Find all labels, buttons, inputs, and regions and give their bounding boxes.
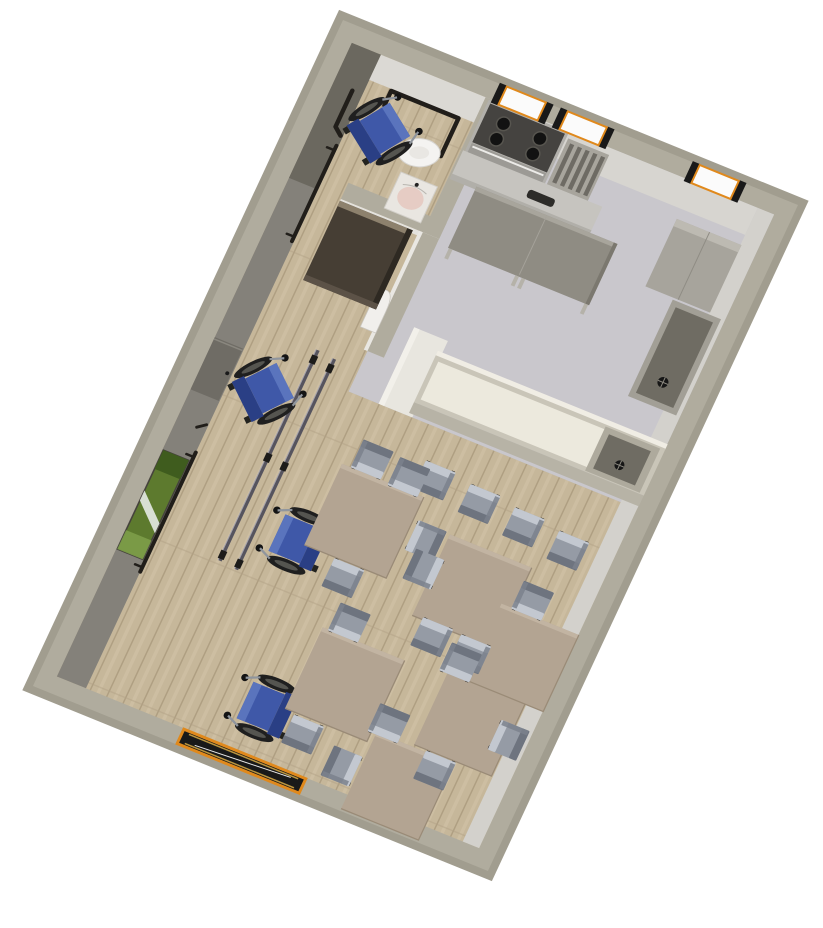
floor-plan-3d-render[interactable] <box>0 0 823 928</box>
screenshot-canvas <box>0 0 823 928</box>
plan-space <box>22 10 808 881</box>
